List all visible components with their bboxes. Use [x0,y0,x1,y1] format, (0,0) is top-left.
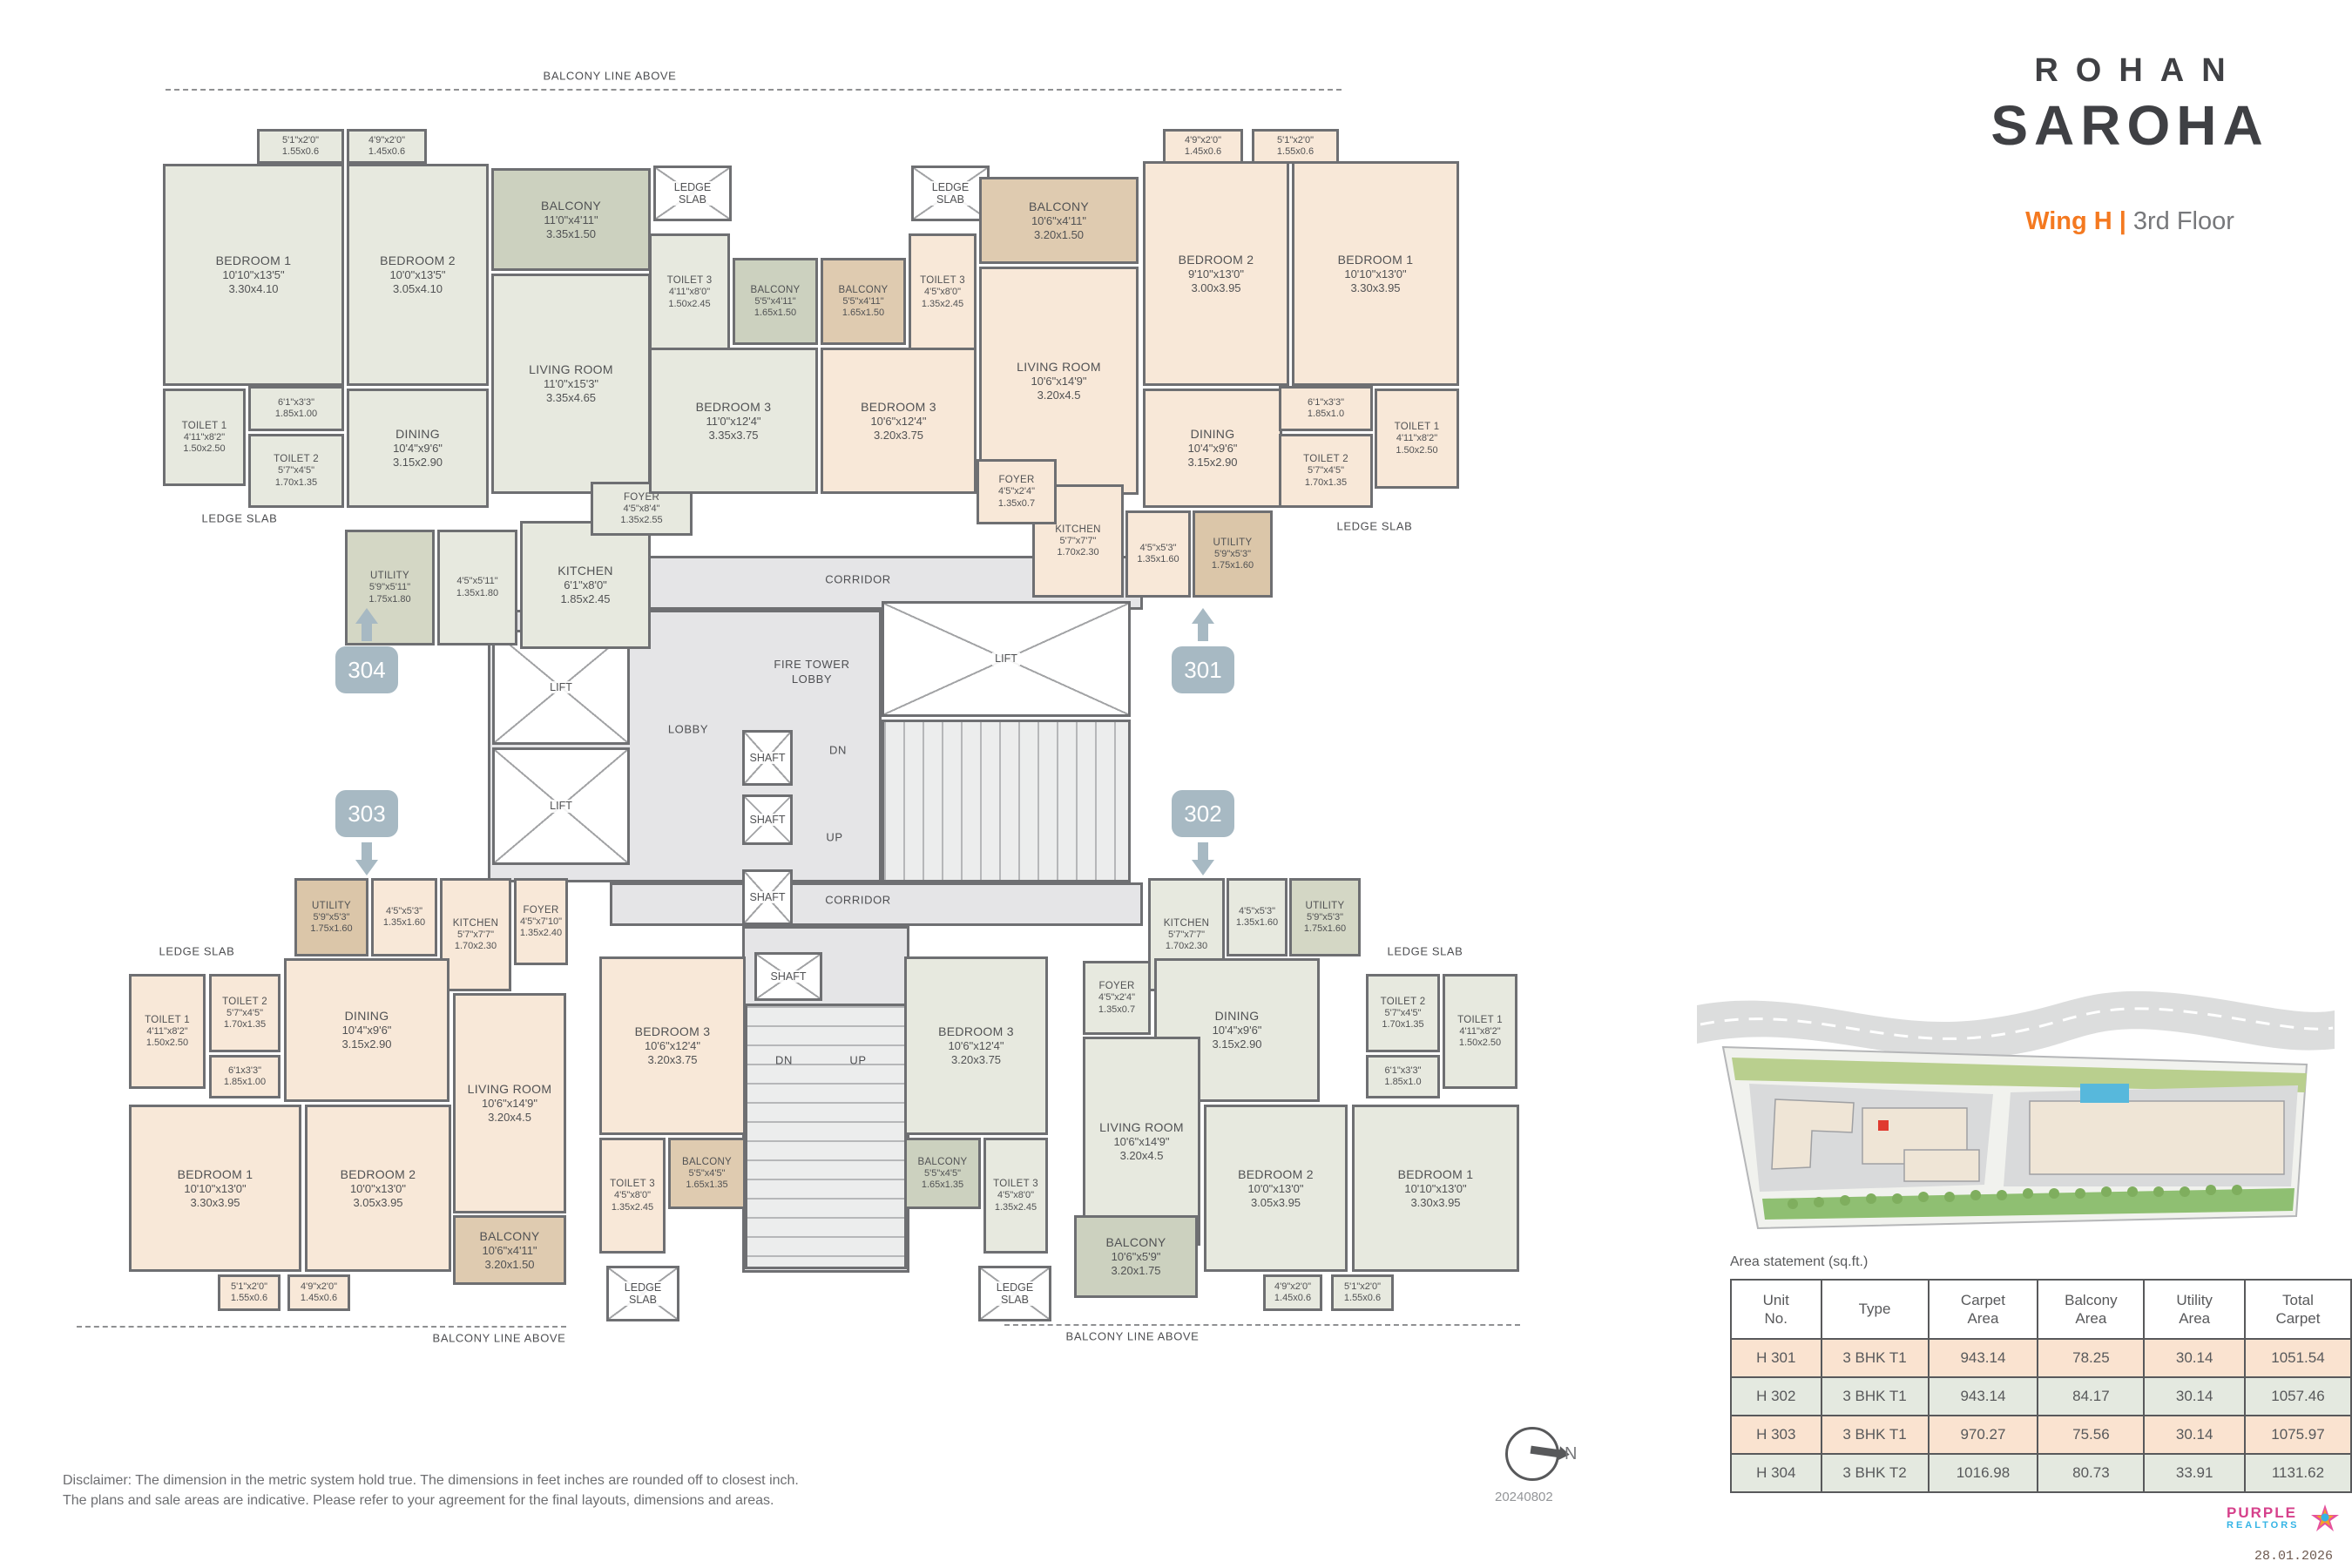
room-dimension: 10'6"x4'11" [482,1244,537,1258]
room-dimension: 1.55x0.6 [231,1293,267,1304]
unit-badge-303: 303 [335,790,398,837]
room-dimension: 1.35x2.55 [620,515,662,526]
table-cell: 1016.98 [1929,1454,2038,1492]
room-balcony: BALCONY5'5"x4'11"1.65x1.50 [733,258,818,345]
plan-label: BALCONY LINE ABOVE [433,1332,566,1347]
room-dimension: 10'6"x5'9" [1112,1250,1161,1264]
room-name: BALCONY [917,1156,967,1168]
room-dimension: 4'5"x8'0" [614,1190,651,1201]
room-dining: DINING10'4"x9'6"3.15x2.90 [347,389,489,508]
room-dimension: 1.50x2.50 [146,1037,188,1049]
room-dimension: 3.20x1.50 [1034,228,1084,242]
xbox-label: LIFT [547,681,575,693]
room-dimension: 10'6"x4'11" [1031,214,1086,228]
xbox-label: LEDGE SLAB [622,1281,664,1307]
table-cell: 75.56 [2038,1416,2144,1454]
room-bedroom-1: BEDROOM 110'10"x13'5"3.30x4.10 [163,164,344,386]
room-dimension: 10'4"x9'6" [1188,442,1238,456]
room-name: BEDROOM 2 [341,1167,416,1182]
unit-badge-301: 301 [1172,646,1234,693]
room-4-9-x2-0-: 4'9"x2'0"1.45x0.6 [1263,1274,1322,1311]
room-dimension: 4'11"x8'2" [1396,433,1437,444]
staircase [882,720,1131,882]
plan-label: LEDGE SLAB [202,512,278,527]
room-dimension: 10'10"x13'0" [1404,1182,1466,1196]
ledge-slab-box: LEDGE SLAB [911,166,990,221]
room-dimension: 5'5"x4'5" [689,1168,726,1179]
room-toilet-2: TOILET 25'7"x4'5"1.70x1.35 [1366,974,1440,1052]
room-utility: UTILITY5'9"x5'3"1.75x1.60 [294,878,368,956]
room-dimension: 1.55x0.6 [1344,1293,1381,1304]
room-dimension: 3.30x4.10 [228,282,278,296]
room-dimension: 3.20x4.5 [488,1111,531,1125]
room-6-1-x3-3-: 6'1"x3'3"1.85x1.0 [1366,1055,1440,1098]
room-bedroom-3: BEDROOM 310'6"x12'4"3.20x3.75 [904,956,1048,1135]
purple-realtors-star-icon [2310,1504,2340,1533]
room-dimension: 5'7"x4'5" [1308,465,1344,476]
lift-box: LIFT [882,601,1131,717]
table-cell: 30.14 [2144,1377,2245,1416]
room-dimension: 1.50x2.50 [1396,445,1437,456]
disclaimer-line-1: Disclaimer: The dimension in the metric … [63,1470,799,1490]
room-toilet-2: TOILET 25'7"x4'5"1.70x1.35 [248,434,344,508]
table-cell: H 302 [1731,1377,1821,1416]
room-dimension: 1.35x0.7 [1098,1004,1135,1016]
room-dimension: 1.35x1.60 [1236,917,1278,929]
room-name: TOILET 3 [610,1178,655,1190]
plan-label: LEDGE SLAB [1388,945,1463,960]
room-name: FOYER [523,904,558,916]
floorplan-page: ROHAN SAROHA Wing H|3rd Floor LIFTLIFTLI… [0,0,2352,1568]
room-dimension: 1.75x1.60 [1304,923,1346,935]
table-cell: H 304 [1731,1454,1821,1492]
room-utility: UTILITY5'9"x5'3"1.75x1.60 [1193,510,1273,598]
room-kitchen: KITCHEN5'7"x7'7"1.70x2.30 [440,878,511,991]
room-name: FOYER [1098,980,1134,992]
room-4-9-x2-0-: 4'9"x2'0"1.45x0.6 [287,1274,350,1311]
room-4-9-x2-0-: 4'9"x2'0"1.45x0.6 [1163,129,1243,164]
room-bedroom-2: BEDROOM 29'10"x13'0"3.00x3.95 [1143,161,1289,386]
room-bedroom-2: BEDROOM 210'0"x13'0"3.05x3.95 [1204,1105,1348,1272]
room-dimension: 6'1x3'3" [228,1065,261,1077]
room-name: BEDROOM 2 [380,253,456,268]
ledge-slab-box: LEDGE SLAB [653,166,732,221]
room-dimension: 10'10"x13'0" [184,1182,246,1196]
room-name: BEDROOM 1 [1398,1167,1474,1182]
room-name: KITCHEN [558,564,613,578]
column-header: Utility Area [2144,1280,2245,1339]
room-name: BALCONY [1029,199,1089,214]
room-dimension: 10'10"x13'5" [222,268,284,282]
shaft-box: SHAFT [754,952,822,1001]
room-dimension: 1.85x2.45 [560,592,610,606]
table-cell: 943.14 [1929,1377,2038,1416]
room-dimension: 1.65x1.35 [686,1179,727,1191]
room-name: BEDROOM 2 [1238,1167,1314,1182]
room-dimension: 3.30x3.95 [1350,281,1400,295]
room-dimension: 4'11"x8'2" [184,432,225,443]
table-cell: 1131.62 [2245,1454,2351,1492]
room-dimension: 11'0"x12'4" [706,415,760,429]
room-dimension: 3.35x4.65 [546,391,596,405]
room-name: LIVING ROOM [1099,1120,1184,1135]
room-dimension: 5'1"x2'0" [1344,1281,1381,1293]
room-dimension: 4'9"x2'0" [368,135,405,146]
unit-badge-304: 304 [335,646,398,693]
xbox-label: LIFT [992,652,1020,665]
room-dimension: 1.75x1.60 [310,923,352,935]
room-dimension: 3.20x3.75 [647,1053,697,1067]
xbox-label: SHAFT [747,891,788,903]
plan-label: LOBBY [668,723,708,738]
room-dimension: 1.65x1.50 [754,308,796,319]
room-dimension: 4'11"x8'0" [669,287,710,298]
room-dimension: 10'4"x9'6" [342,1024,392,1037]
room-dimension: 5'9"x5'11" [369,582,410,593]
room-4-5-x5-11-: 4'5"x5'11"1.35x1.80 [437,530,517,645]
site-wing-h-marker [1878,1120,1889,1131]
arrow-down-icon [362,842,372,860]
room-dimension: 6'1"x3'3" [278,397,314,409]
plan-label: FIRE TOWER LOBBY [774,658,849,687]
table-row: H 3033 BHK T1970.2775.5630.141075.97 [1731,1416,2351,1454]
balcony-line-dash [77,1326,566,1328]
drawing-number: 20240802 [1495,1490,1553,1504]
table-cell: 84.17 [2038,1377,2144,1416]
room-balcony: BALCONY5'5"x4'5"1.65x1.35 [668,1138,746,1209]
room-living-room: LIVING ROOM10'6"x14'9"3.20x4.5 [1083,1037,1200,1246]
room-name: TOILET 1 [182,420,227,432]
site-building-d [2030,1101,2284,1174]
room-dimension: 3.30x3.95 [1410,1196,1460,1210]
room-living-room: LIVING ROOM11'0"x15'3"3.35x4.65 [491,274,651,494]
room-bedroom-3: BEDROOM 310'6"x12'4"3.20x3.75 [821,348,977,494]
room-name: BALCONY [1105,1235,1166,1250]
room-dimension: 10'4"x9'6" [1213,1024,1262,1037]
room-6-1-x3-3-: 6'1"x3'3"1.85x1.00 [248,386,344,431]
room-dimension: 10'4"x9'6" [393,442,443,456]
lift-box: LIFT [492,747,630,865]
arrow-up-icon [355,608,378,624]
column-header: Carpet Area [1929,1280,2038,1339]
room-dimension: 1.45x0.6 [368,146,405,158]
room-dimension: 1.85x1.00 [224,1077,266,1088]
room-dimension: 1.50x2.45 [668,299,710,310]
room-dimension: 1.35x1.60 [383,917,425,929]
room-dimension: 3.20x3.75 [874,429,923,443]
room-name: DINING [395,427,440,442]
room-dimension: 1.70x1.35 [1382,1019,1423,1031]
room-name: UTILITY [312,900,351,912]
room-name: TOILET 3 [920,274,965,287]
table-cell: 33.91 [2144,1454,2245,1492]
room-dimension: 1.85x1.0 [1308,409,1344,420]
plan-label: CORRIDOR [825,894,891,909]
room-bedroom-1: BEDROOM 110'10"x13'0"3.30x3.95 [129,1105,301,1272]
plan-label: UP [849,1054,866,1069]
room-dimension: 4'11"x8'2" [1459,1026,1500,1037]
arrow-up-icon [1192,608,1214,624]
room-foyer: FOYER4'5"x7'10"1.35x2.40 [514,878,568,965]
room-dimension: 3.20x1.75 [1111,1264,1160,1278]
room-name: KITCHEN [1055,524,1101,536]
plan-label: BALCONY LINE ABOVE [544,70,677,84]
room-dimension: 1.50x2.50 [183,443,225,455]
room-5-1-x2-0-: 5'1"x2'0"1.55x0.6 [218,1274,280,1311]
room-dimension: 1.70x2.30 [1166,941,1207,952]
arrow-down-icon [355,860,378,875]
room-dimension: 1.75x1.80 [368,594,410,605]
room-name: UTILITY [1213,537,1253,549]
room-toilet-2: TOILET 25'7"x4'5"1.70x1.35 [1279,434,1373,508]
room-utility: UTILITY5'9"x5'11"1.75x1.80 [345,530,435,645]
room-name: TOILET 1 [1457,1014,1503,1026]
room-dimension: 5'7"x7'7" [1168,929,1205,941]
room-dimension: 1.45x0.6 [1274,1293,1311,1304]
room-dimension: 1.70x1.35 [224,1019,266,1031]
room-name: BALCONY [838,284,888,296]
arrow-down-icon [1198,842,1208,860]
room-dimension: 3.15x2.90 [1187,456,1237,470]
room-5-1-x2-0-: 5'1"x2'0"1.55x0.6 [1252,129,1339,164]
room-dimension: 1.65x1.35 [922,1179,963,1191]
room-dimension: 10'6"x12'4" [645,1039,700,1053]
room-living-room: LIVING ROOM10'6"x14'9"3.20x4.5 [453,993,566,1213]
room-name: UTILITY [370,570,409,582]
plan-label: DN [829,744,847,759]
table-cell: 1051.54 [2245,1339,2351,1377]
room-dimension: 11'0"x15'3" [544,377,598,391]
plan-label: LEDGE SLAB [1337,520,1413,535]
room-name: BEDROOM 3 [861,400,936,415]
column-header: Unit No. [1731,1280,1821,1339]
shaft-box: SHAFT [742,869,793,925]
room-dimension: 1.45x0.6 [301,1293,337,1304]
table-cell: 970.27 [1929,1416,2038,1454]
room-dimension: 1.55x0.6 [282,146,319,158]
plan-label: LEDGE SLAB [159,945,235,960]
shaft-box: SHAFT [742,730,793,786]
room-dimension: 3.05x3.95 [353,1196,402,1210]
ledge-slab-box: LEDGE SLAB [606,1266,679,1321]
room-dimension: 1.50x2.50 [1459,1037,1501,1049]
room-dimension: 3.05x3.95 [1251,1196,1301,1210]
room-dimension: 1.65x1.50 [842,308,884,319]
room-dimension: 4'5"x8'0" [997,1190,1034,1201]
room-dimension: 10'6"x14'9" [482,1097,537,1111]
room-dimension: 1.45x0.6 [1185,146,1221,158]
room-dimension: 1.55x0.6 [1277,146,1314,158]
room-5-1-x2-0-: 5'1"x2'0"1.55x0.6 [257,129,344,164]
site-pool [2080,1084,2129,1103]
room-foyer: FOYER4'5"x2'4"1.35x0.7 [1083,961,1151,1035]
room-4-5-x5-3-: 4'5"x5'3"1.35x1.60 [1227,878,1288,956]
room-dimension: 5'9"x5'3" [1214,549,1251,560]
room-name: BALCONY [750,284,800,296]
arrow-down-icon [1192,860,1214,875]
room-balcony: BALCONY10'6"x4'11"3.20x1.50 [979,177,1139,264]
room-bedroom-1: BEDROOM 110'10"x13'0"3.30x3.95 [1292,161,1459,386]
room-name: BEDROOM 2 [1179,253,1254,267]
room-dimension: 4'5"x7'10" [520,916,562,928]
table-cell: H 303 [1731,1416,1821,1454]
room-toilet-1: TOILET 14'11"x8'2"1.50x2.50 [129,974,206,1089]
room-name: FOYER [998,474,1034,486]
room-dimension: 11'0"x4'11" [544,213,598,227]
table-row: H 3013 BHK T1943.1478.2530.141051.54 [1731,1339,2351,1377]
xbox-label: SHAFT [747,814,788,826]
xbox-label: SHAFT [768,970,809,983]
room-foyer: FOYER4'5"x2'4"1.35x0.7 [977,459,1057,524]
room-dimension: 1.70x1.35 [275,477,317,489]
room-dimension: 6'1"x3'3" [1308,397,1344,409]
room-toilet-3: TOILET 34'5"x8'0"1.35x2.45 [983,1138,1048,1254]
room-name: TOILET 3 [667,274,713,287]
room-dimension: 3.20x4.5 [1037,389,1081,402]
room-dimension: 1.35x2.45 [922,299,963,310]
room-utility: UTILITY5'9"x5'3"1.75x1.60 [1289,878,1361,956]
staircase [745,1004,907,1269]
table-cell: 1075.97 [2245,1416,2351,1454]
room-dimension: 5'7"x7'7" [1060,536,1097,547]
column-header: Total Carpet [2245,1280,2351,1339]
room-name: LIVING ROOM [1017,360,1101,375]
room-dimension: 6'1"x3'3" [1385,1065,1422,1077]
area-statement-title: Area statement (sq.ft.) [1730,1254,1868,1270]
room-dimension: 1.35x1.80 [456,588,498,599]
site-road [1697,991,2335,1058]
room-dimension: 4'5"x5'11" [456,576,497,587]
room-dimension: 5'5"x4'11" [754,296,795,308]
room-dimension: 1.85x1.00 [275,409,317,420]
balcony-line-dash [166,89,1342,91]
room-4-5-x5-3-: 4'5"x5'3"1.35x1.60 [1125,510,1191,598]
room-dimension: 9'10"x13'0" [1188,267,1244,281]
table-cell: 80.73 [2038,1454,2144,1492]
room-balcony: BALCONY5'5"x4'11"1.65x1.50 [821,258,906,345]
xbox-label: LEDGE SLAB [994,1281,1036,1307]
room-toilet-3: TOILET 34'5"x8'0"1.35x2.45 [599,1138,666,1254]
room-dimension: 4'5"x5'3" [1140,543,1177,554]
purple-realtors-logo: PURPLE REALTORS [2227,1505,2340,1533]
room-dimension: 3.15x2.90 [341,1037,391,1051]
room-dimension: 1.35x1.60 [1137,554,1179,565]
room-name: TOILET 1 [1395,421,1440,433]
room-name: UTILITY [1306,900,1345,912]
room-dimension: 5'7"x4'5" [226,1008,263,1019]
room-name: BEDROOM 3 [696,400,772,415]
balcony-line-dash [1004,1324,1520,1326]
room-dimension: 1.35x2.45 [995,1202,1037,1213]
plan-label: CORRIDOR [825,573,891,588]
xbox-label: SHAFT [747,752,788,764]
room-6-1x3-3-: 6'1x3'3"1.85x1.00 [209,1055,280,1098]
room-balcony: BALCONY10'6"x5'9"3.20x1.75 [1074,1215,1198,1298]
room-dimension: 3.35x3.75 [708,429,758,443]
room-5-1-x2-0-: 5'1"x2'0"1.55x0.6 [1331,1274,1394,1311]
table-cell: 78.25 [2038,1339,2144,1377]
room-dimension: 3.15x2.90 [1212,1037,1261,1051]
column-header: Balcony Area [2038,1280,2144,1339]
room-balcony: BALCONY5'5"x4'5"1.65x1.35 [904,1138,981,1209]
table-row: H 3043 BHK T21016.9880.7333.911131.62 [1731,1454,2351,1492]
room-name: DINING [345,1009,389,1024]
room-name: LIVING ROOM [468,1082,552,1097]
room-dimension: 3.05x4.10 [393,282,443,296]
plan-label: BALCONY LINE ABOVE [1066,1330,1200,1345]
room-dimension: 10'6"x12'4" [870,415,926,429]
room-name: LIVING ROOM [529,362,613,377]
room-dimension: 10'6"x14'9" [1031,375,1086,389]
room-dimension: 5'9"x5'3" [314,912,350,923]
date-stamp: 28.01.2026 [2254,1549,2333,1564]
room-dining: DINING10'4"x9'6"3.15x2.90 [1143,389,1282,508]
site-building-c [1904,1150,1979,1181]
room-dimension: 10'6"x14'9" [1113,1135,1169,1149]
plan-label: DN [775,1054,793,1069]
room-name: TOILET 2 [1303,453,1348,465]
unit-badge-302: 302 [1172,790,1234,837]
xbox-label: LEDGE SLAB [672,181,713,206]
room-dimension: 4'5"x5'3" [1239,906,1275,917]
room-dimension: 5'7"x7'7" [457,929,494,941]
room-dimension: 6'1"x8'0" [564,578,607,592]
disclaimer-line-2: The plans and sale areas are indicative.… [63,1490,799,1511]
room-dimension: 5'1"x2'0" [1277,135,1314,146]
table-cell: 30.14 [2144,1339,2245,1377]
room-bedroom-3: BEDROOM 311'0"x12'4"3.35x3.75 [649,348,818,494]
room-name: TOILET 1 [145,1014,190,1026]
site-key-plan [1697,979,2335,1254]
room-dimension: 1.35x2.45 [612,1202,653,1213]
room-name: BALCONY [479,1229,539,1244]
arrow-up-icon [362,624,372,641]
room-dimension: 1.85x1.0 [1384,1077,1421,1088]
room-bedroom-3: BEDROOM 310'6"x12'4"3.20x3.75 [599,956,746,1135]
room-dimension: 4'5"x8'4" [624,504,660,515]
arrow-up-icon [1198,624,1208,641]
room-dimension: 1.70x2.30 [455,941,497,952]
room-dimension: 1.35x2.40 [520,928,562,939]
disclaimer: Disclaimer: The dimension in the metric … [63,1470,799,1511]
room-name: BEDROOM 1 [178,1167,253,1182]
room-dimension: 1.75x1.60 [1212,560,1254,571]
room-dimension: 1.35x0.7 [998,498,1035,510]
room-name: BEDROOM 3 [635,1024,711,1039]
room-name: DINING [1191,427,1235,442]
room-name: KITCHEN [1164,917,1210,929]
xbox-label: LIFT [547,800,575,812]
room-dining: DINING10'4"x9'6"3.15x2.90 [284,958,449,1102]
room-dimension: 3.35x1.50 [546,227,596,241]
room-dimension: 4'5"x2'4" [998,486,1035,497]
room-name: TOILET 2 [1381,996,1426,1008]
table-cell: 30.14 [2144,1416,2245,1454]
room-dimension: 4'5"x2'4" [1098,992,1135,1004]
room-dimension: 1.70x2.30 [1057,547,1098,558]
room-dimension: 4'9"x2'0" [301,1281,337,1293]
room-toilet-3: TOILET 34'11"x8'0"1.50x2.45 [649,233,730,351]
table-cell: 3 BHK T1 [1821,1377,1929,1416]
room-toilet-1: TOILET 14'11"x8'2"1.50x2.50 [1375,389,1459,489]
room-name: BEDROOM 1 [216,253,292,268]
room-name: TOILET 3 [993,1178,1038,1190]
room-dimension: 3.20x1.50 [484,1258,534,1272]
room-dimension: 5'7"x4'5" [278,465,314,476]
room-6-1-x3-3-: 6'1"x3'3"1.85x1.0 [1279,386,1373,431]
room-dimension: 5'7"x4'5" [1385,1008,1422,1019]
room-name: BALCONY [541,199,601,213]
